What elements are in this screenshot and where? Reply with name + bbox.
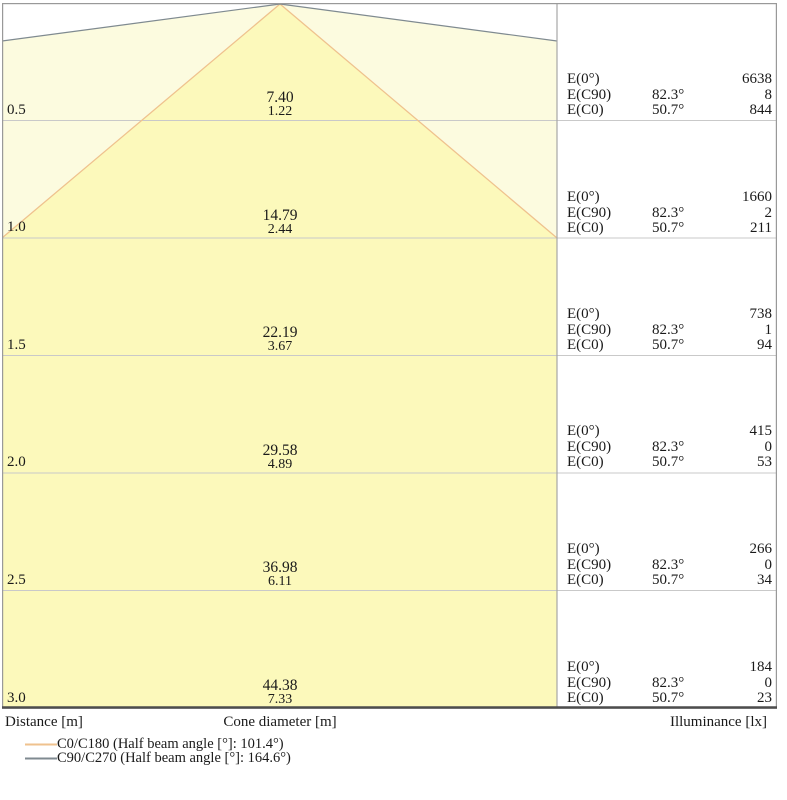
ec0-value: 53 bbox=[757, 455, 772, 471]
cone-diameter-c90: 7.40 bbox=[2, 90, 558, 105]
ec90-value: 8 bbox=[765, 88, 773, 104]
ec0-label: E(C0) bbox=[567, 691, 604, 707]
cone-diameter-values: 22.19 3.67 bbox=[2, 325, 558, 353]
e0-label: E(0°) bbox=[567, 72, 600, 88]
ec90-label: E(C90) bbox=[567, 323, 611, 339]
ec0-value: 23 bbox=[757, 691, 772, 707]
cone-diameter-c0: 6.11 bbox=[2, 575, 558, 588]
ec90-value: 0 bbox=[765, 558, 773, 574]
ec0-angle: 50.7° bbox=[652, 103, 684, 119]
cone-diameter-values: 14.79 2.44 bbox=[2, 208, 558, 236]
illuminance-row: E(0°)738 E(C90)82.3°1 E(C0)50.7°94 bbox=[557, 307, 777, 354]
ec90-label: E(C90) bbox=[567, 676, 611, 692]
cone-diameter-c0: 2.44 bbox=[2, 223, 558, 236]
ec0-label: E(C0) bbox=[567, 573, 604, 589]
illuminance-row: E(0°)1660 E(C90)82.3°2 E(C0)50.7°211 bbox=[557, 190, 777, 237]
ec90-value: 1 bbox=[765, 323, 773, 339]
ec0-label: E(C0) bbox=[567, 455, 604, 471]
e0-label: E(0°) bbox=[567, 660, 600, 676]
footer-illuminance-label: Illuminance [lx] bbox=[670, 714, 767, 731]
ec90-angle: 82.3° bbox=[652, 323, 684, 339]
ec90-angle: 82.3° bbox=[652, 676, 684, 692]
e0-value: 738 bbox=[750, 307, 773, 323]
cone-diameter-c90: 44.38 bbox=[2, 678, 558, 693]
illuminance-row: E(0°)266 E(C90)82.3°0 E(C0)50.7°34 bbox=[557, 542, 777, 589]
ec0-label: E(C0) bbox=[567, 103, 604, 119]
cone-diagram-page: 0.5 1.0 1.5 2.0 2.5 3.0 7.40 1.22 14.79 … bbox=[0, 0, 787, 800]
e0-value: 415 bbox=[750, 424, 773, 440]
e0-label: E(0°) bbox=[567, 190, 600, 206]
e0-value: 266 bbox=[750, 542, 773, 558]
cone-diameter-values: 36.98 6.11 bbox=[2, 560, 558, 588]
e0-value: 184 bbox=[750, 660, 773, 676]
legend-c0-label: C0/C180 (Half beam angle [°]: 101.4°) bbox=[57, 737, 284, 751]
ec90-angle: 82.3° bbox=[652, 206, 684, 222]
ec0-angle: 50.7° bbox=[652, 573, 684, 589]
ec90-angle: 82.3° bbox=[652, 88, 684, 104]
cone-diameter-c90: 22.19 bbox=[2, 325, 558, 340]
c0-line-swatch-icon bbox=[25, 743, 57, 746]
footer-cone-diameter-label: Cone diameter [m] bbox=[2, 714, 558, 731]
ec90-value: 0 bbox=[765, 440, 773, 456]
ec90-angle: 82.3° bbox=[652, 440, 684, 456]
ec0-value: 94 bbox=[757, 338, 772, 354]
cone-diameter-c0: 3.67 bbox=[2, 340, 558, 353]
cone-diameter-values: 7.40 1.22 bbox=[2, 90, 558, 118]
ec0-label: E(C0) bbox=[567, 221, 604, 237]
ec0-value: 844 bbox=[750, 103, 773, 119]
cone-diameter-c0: 4.89 bbox=[2, 458, 558, 471]
ec90-label: E(C90) bbox=[567, 558, 611, 574]
ec0-angle: 50.7° bbox=[652, 338, 684, 354]
e0-value: 1660 bbox=[742, 190, 772, 206]
ec90-label: E(C90) bbox=[567, 88, 611, 104]
cone-diameter-c90: 14.79 bbox=[2, 208, 558, 223]
ec90-angle: 82.3° bbox=[652, 558, 684, 574]
ec0-value: 34 bbox=[757, 573, 772, 589]
ec0-angle: 50.7° bbox=[652, 455, 684, 471]
ec90-label: E(C90) bbox=[567, 206, 611, 222]
ec0-angle: 50.7° bbox=[652, 691, 684, 707]
cone-diameter-c90: 29.58 bbox=[2, 443, 558, 458]
legend-c90-label: C90/C270 (Half beam angle [°]: 164.6°) bbox=[57, 751, 291, 765]
illuminance-row: E(0°)184 E(C90)82.3°0 E(C0)50.7°23 bbox=[557, 660, 777, 707]
cone-diameter-c0: 7.33 bbox=[2, 693, 558, 706]
ec90-value: 0 bbox=[765, 676, 773, 692]
cone-diameter-c0: 1.22 bbox=[2, 105, 558, 118]
illuminance-row: E(0°)6638 E(C90)82.3°8 E(C0)50.7°844 bbox=[557, 72, 777, 119]
e0-value: 6638 bbox=[742, 72, 772, 88]
e0-label: E(0°) bbox=[567, 424, 600, 440]
e0-label: E(0°) bbox=[567, 542, 600, 558]
cone-diameter-c90: 36.98 bbox=[2, 560, 558, 575]
c90-line-swatch-icon bbox=[25, 757, 57, 760]
cone-diameter-values: 29.58 4.89 bbox=[2, 443, 558, 471]
e0-label: E(0°) bbox=[567, 307, 600, 323]
ec0-label: E(C0) bbox=[567, 338, 604, 354]
ec0-angle: 50.7° bbox=[652, 221, 684, 237]
cone-diameter-values: 44.38 7.33 bbox=[2, 678, 558, 706]
ec0-value: 211 bbox=[750, 221, 772, 237]
ec90-value: 2 bbox=[765, 206, 773, 222]
ec90-label: E(C90) bbox=[567, 440, 611, 456]
illuminance-row: E(0°)415 E(C90)82.3°0 E(C0)50.7°53 bbox=[557, 424, 777, 471]
